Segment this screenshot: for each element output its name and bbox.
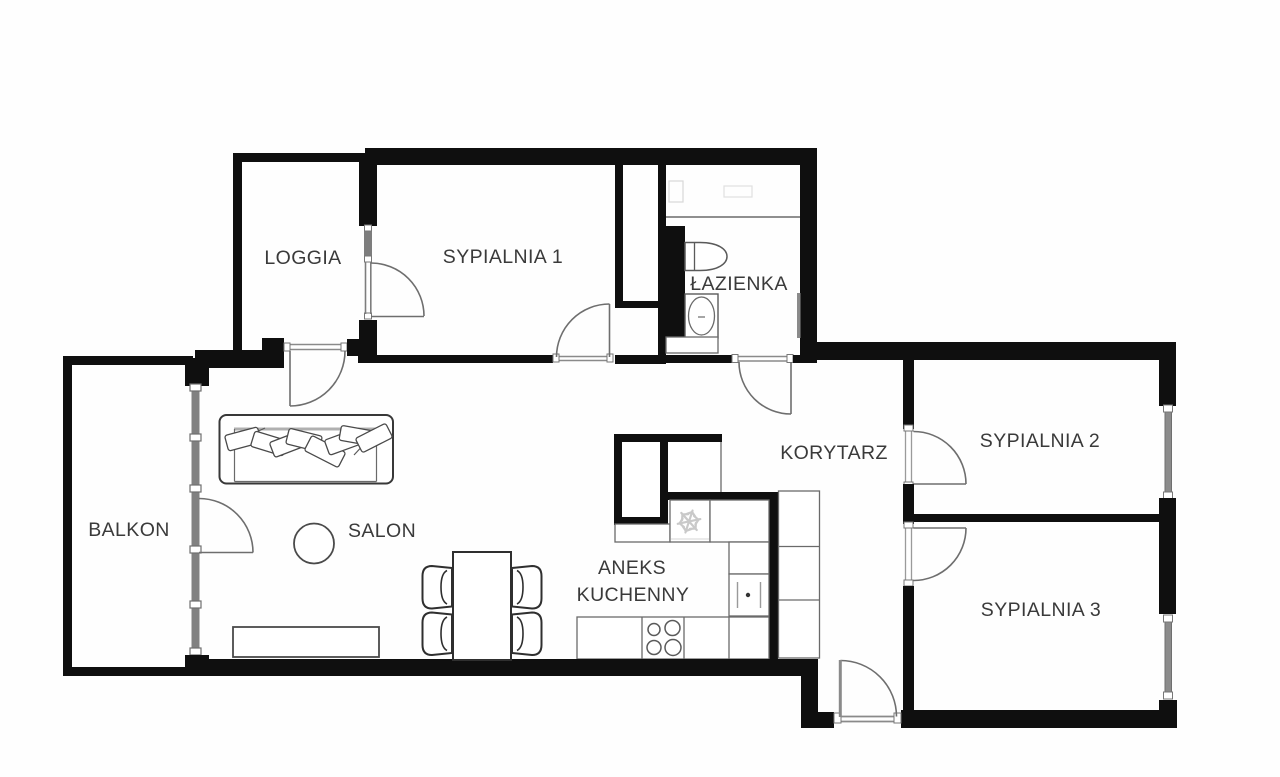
svg-text:SYPIALNIA 1: SYPIALNIA 1 [443, 246, 563, 268]
svg-text:ŁAZIENKA: ŁAZIENKA [690, 273, 787, 295]
svg-text:BALKON: BALKON [88, 519, 170, 541]
svg-text:SYPIALNIA 3: SYPIALNIA 3 [981, 599, 1101, 621]
svg-text:SYPIALNIA 2: SYPIALNIA 2 [980, 430, 1100, 452]
svg-text:SALON: SALON [348, 520, 416, 542]
svg-text:LOGGIA: LOGGIA [264, 247, 341, 269]
svg-text:KUCHENNY: KUCHENNY [577, 584, 690, 606]
svg-text:ANEKS: ANEKS [598, 557, 666, 579]
svg-text:KORYTARZ: KORYTARZ [780, 442, 888, 464]
